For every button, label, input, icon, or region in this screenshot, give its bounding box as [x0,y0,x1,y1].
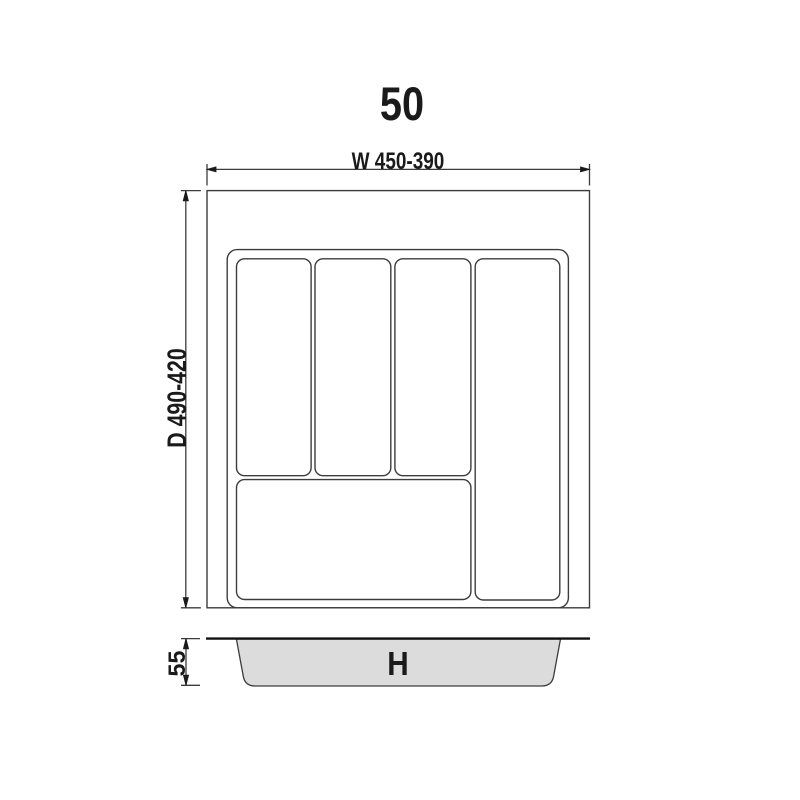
svg-text:H: H [387,646,408,683]
svg-text:W 450-390: W 450-390 [352,147,445,175]
svg-text:55: 55 [165,651,191,677]
svg-text:D 490-420: D 490-420 [163,348,193,447]
svg-text:50: 50 [380,79,424,131]
